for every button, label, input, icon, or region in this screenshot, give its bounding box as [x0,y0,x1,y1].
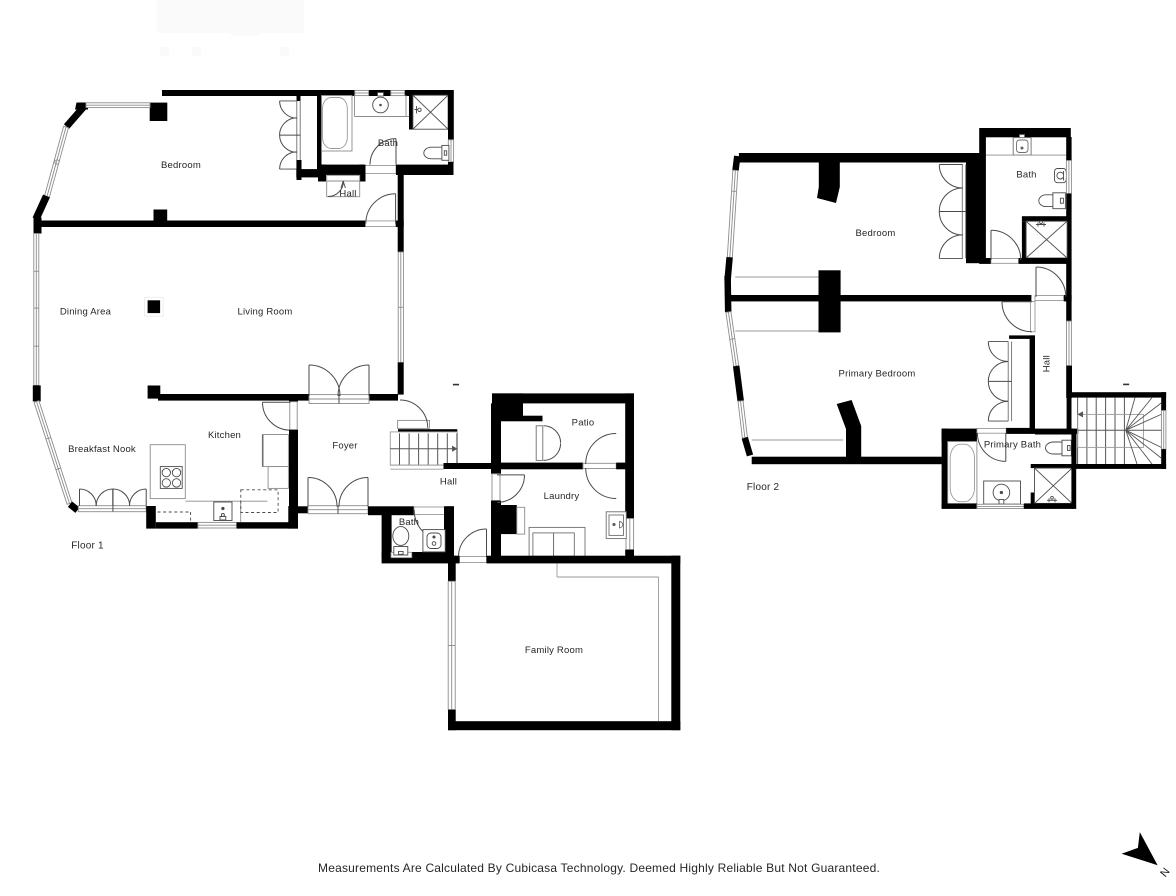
svg-text:Dining Area: Dining Area [60,307,112,318]
svg-text:Family Room: Family Room [525,645,583,656]
svg-text:Breakfast Nook: Breakfast Nook [68,444,136,455]
svg-text:Living Room: Living Room [237,307,292,318]
svg-text:Hall: Hall [1041,355,1052,372]
svg-text:Hall: Hall [440,477,457,488]
svg-text:Kitchen: Kitchen [208,430,241,441]
svg-text:Patio: Patio [572,418,595,429]
svg-text:Laundry: Laundry [544,491,580,502]
svg-text:Foyer: Foyer [332,441,357,452]
svg-text:Primary Bath: Primary Bath [984,440,1041,451]
svg-text:Hall: Hall [339,189,356,200]
svg-text:Primary Bedroom: Primary Bedroom [839,369,916,380]
svg-text:Floor 2: Floor 2 [747,482,780,493]
svg-text:Bath: Bath [1016,170,1036,181]
svg-text:Measurements Are Calculated By: Measurements Are Calculated By Cubicasa … [318,861,880,875]
svg-text:Bedroom: Bedroom [856,228,896,239]
svg-text:Floor 1: Floor 1 [71,541,104,552]
svg-text:Bath: Bath [378,138,398,149]
svg-text:Bedroom: Bedroom [161,160,201,171]
